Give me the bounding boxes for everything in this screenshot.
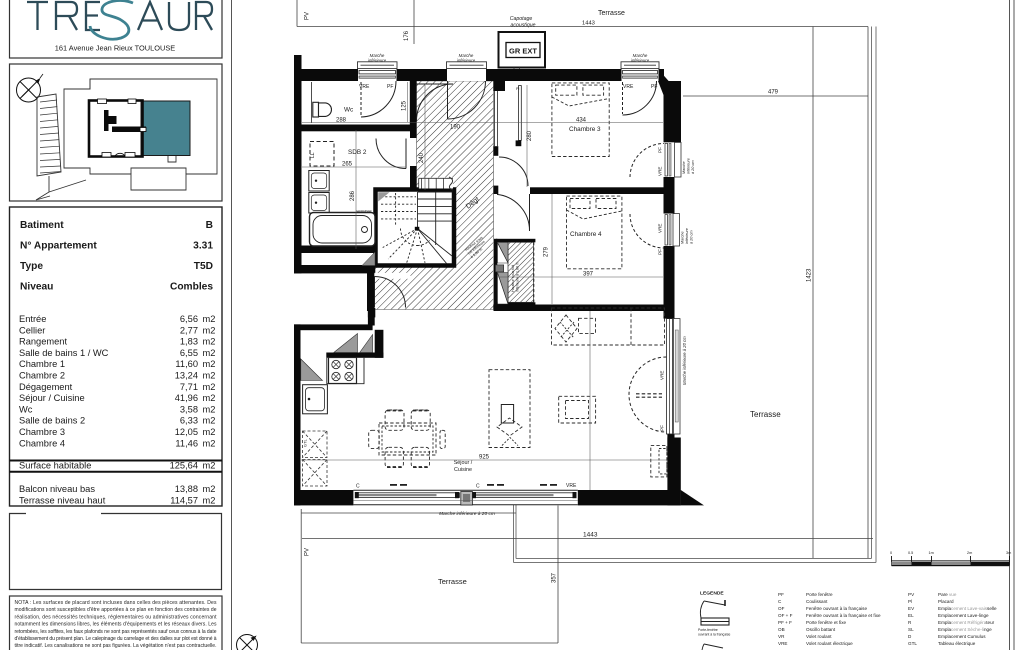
svg-text:265: 265	[342, 162, 353, 168]
svg-text:LEGENDE: LEGENDE	[700, 591, 724, 597]
svg-text:NOTA : Les surfaces de placard: NOTA : Les surfaces de placard sont incl…	[15, 600, 218, 606]
svg-text:Séjour /: Séjour /	[454, 460, 473, 466]
svg-text:modifications sont susceptible: modifications sont susceptibles d'être a…	[15, 607, 217, 613]
svg-text:C: C	[356, 484, 360, 490]
svg-text:6,56: 6,56	[180, 314, 198, 324]
svg-text:inférieure: inférieure	[687, 158, 691, 174]
svg-text:m2: m2	[203, 314, 216, 324]
svg-text:280: 280	[527, 130, 533, 141]
svg-text:Séjour / Cuisine: Séjour / Cuisine	[19, 393, 85, 403]
svg-text:Type: Type	[20, 261, 43, 272]
svg-text:GTL: GTL	[303, 438, 308, 447]
svg-text:m2: m2	[203, 438, 216, 448]
svg-text:Chambre 3: Chambre 3	[19, 427, 65, 437]
svg-text:Porte-fenêtre: Porte-fenêtre	[698, 628, 718, 632]
svg-text:PF: PF	[387, 84, 393, 90]
svg-text:1423: 1423	[807, 268, 813, 282]
svg-text:7,71: 7,71	[180, 382, 198, 392]
svg-text:m2: m2	[203, 404, 216, 414]
svg-text:13,24: 13,24	[175, 371, 198, 381]
svg-text:Salle de bains 2: Salle de bains 2	[19, 416, 85, 426]
svg-text:Emplacement Lave-linge: Emplacement Lave-linge	[938, 613, 989, 618]
svg-text:925: 925	[479, 455, 490, 461]
svg-text:C: C	[476, 484, 480, 490]
svg-text:inférieure: inférieure	[685, 228, 689, 244]
svg-text:Marche: Marche	[681, 231, 685, 244]
svg-text:m2: m2	[203, 484, 216, 494]
svg-text:m2: m2	[203, 348, 216, 358]
svg-text:Fenêtre ouvrant à la française: Fenêtre ouvrant à la française	[806, 606, 867, 611]
svg-text:41,96: 41,96	[175, 393, 198, 403]
svg-text:Tableau électrique: Tableau électrique	[938, 641, 976, 646]
svg-text:Porte fenêtre et fixe: Porte fenêtre et fixe	[806, 620, 847, 625]
svg-text:Chambre 1: Chambre 1	[19, 359, 65, 369]
svg-text:à 20 cm: à 20 cm	[691, 160, 695, 174]
svg-text:Pare vue: Pare vue	[938, 592, 957, 597]
svg-text:161 Avenue Jean Rieux TOULOUSE: 161 Avenue Jean Rieux TOULOUSE	[55, 44, 175, 53]
svg-text:1m: 1m	[929, 551, 934, 555]
svg-text:Combles: Combles	[170, 282, 213, 293]
svg-text:SDB 2: SDB 2	[348, 149, 367, 156]
svg-text:Terrasse: Terrasse	[438, 577, 467, 586]
svg-text:VRE: VRE	[623, 84, 634, 90]
svg-text:PV: PV	[305, 548, 311, 556]
svg-text:m2: m2	[203, 325, 216, 335]
svg-text:OF + F: OF + F	[778, 613, 793, 618]
svg-text:m2: m2	[203, 337, 216, 347]
svg-text:PF: PF	[658, 147, 663, 153]
svg-text:125,64: 125,64	[170, 461, 198, 471]
svg-text:3,58: 3,58	[180, 404, 198, 414]
svg-text:Salle de bains 1 / WC: Salle de bains 1 / WC	[19, 348, 109, 358]
svg-text:VRE: VRE	[566, 483, 577, 489]
svg-text:N° Appartement: N° Appartement	[20, 241, 97, 252]
svg-text:GR EXT: GR EXT	[509, 47, 537, 56]
svg-text:125: 125	[402, 100, 408, 111]
svg-text:357: 357	[552, 572, 558, 583]
svg-text:397: 397	[583, 272, 594, 278]
svg-text:B: B	[206, 220, 213, 231]
svg-text:Chambre 3: Chambre 3	[569, 126, 601, 133]
svg-text:Placard: Placard	[938, 599, 954, 604]
svg-text:286: 286	[350, 190, 356, 201]
svg-text:Emplacement Cumulus: Emplacement Cumulus	[938, 634, 986, 639]
svg-text:GTL: GTL	[908, 641, 917, 646]
svg-text:0.5: 0.5	[908, 551, 913, 555]
svg-text:Terrasse: Terrasse	[598, 10, 625, 17]
svg-text:PV: PV	[305, 12, 311, 20]
svg-text:12,05: 12,05	[175, 427, 198, 437]
svg-text:Surface habitable: Surface habitable	[19, 461, 91, 471]
svg-text:EL: EL	[908, 613, 914, 618]
svg-text:Volet roulant: Volet roulant	[806, 634, 832, 639]
svg-text:LL: LL	[310, 152, 316, 158]
svg-text:Pl: Pl	[516, 87, 520, 91]
svg-text:PF: PF	[778, 592, 784, 597]
svg-text:réalisation, des nécessités te: réalisation, des nécessités techniques, …	[15, 614, 218, 620]
svg-text:Volet roulant électrique: Volet roulant électrique	[806, 641, 853, 646]
svg-text:0: 0	[890, 551, 892, 555]
svg-text:Chambre 4: Chambre 4	[570, 231, 602, 238]
svg-text:114,57: 114,57	[170, 496, 198, 506]
svg-text:1,83: 1,83	[180, 337, 198, 347]
svg-text:retombées, les soffites, les f: retombées, les soffites, les faux plafon…	[15, 629, 217, 635]
svg-text:d'établissement du présent pla: d'établissement du présent plan. Le cale…	[15, 636, 217, 642]
svg-text:479: 479	[768, 90, 779, 96]
svg-text:Hauteur sous toit: Hauteur sous toit	[511, 265, 515, 292]
svg-text:m2: m2	[203, 359, 216, 369]
svg-text:240: 240	[419, 152, 425, 163]
svg-text:Batiment: Batiment	[20, 220, 64, 231]
svg-text:ouvrant à la française: ouvrant à la française	[698, 633, 731, 637]
svg-text:PF: PF	[658, 249, 663, 255]
svg-text:2,77: 2,77	[180, 325, 198, 335]
svg-text:PF + F: PF + F	[778, 620, 792, 625]
svg-text:T5D: T5D	[194, 261, 213, 272]
svg-text:1443: 1443	[583, 532, 598, 539]
svg-text:PF: PF	[660, 425, 665, 431]
svg-text:Marche inférieure à 20 cm: Marche inférieure à 20 cm	[682, 336, 687, 385]
svg-text:Dégagement: Dégagement	[19, 382, 73, 392]
svg-text:3m: 3m	[1006, 551, 1011, 555]
svg-text:Wc: Wc	[19, 404, 33, 414]
svg-text:3.31: 3.31	[193, 241, 213, 252]
svg-text:Terrasse: Terrasse	[750, 410, 781, 419]
svg-text:6,55: 6,55	[180, 348, 198, 358]
svg-text:m2: m2	[203, 382, 216, 392]
svg-text:m2: m2	[203, 496, 216, 506]
svg-text:Terrasse niveau haut: Terrasse niveau haut	[19, 496, 106, 506]
svg-text:2m: 2m	[967, 551, 972, 555]
svg-text:1443: 1443	[582, 21, 595, 27]
svg-text:288: 288	[336, 118, 347, 124]
svg-text:Coulissant: Coulissant	[806, 599, 828, 604]
svg-text:Chambre 4: Chambre 4	[19, 438, 65, 448]
svg-text:Wc: Wc	[344, 107, 354, 114]
svg-text:m2: m2	[203, 461, 216, 471]
svg-text:Fenêtre ouvrant à la française: Fenêtre ouvrant à la française et fixe	[806, 613, 881, 618]
svg-text:Entrée: Entrée	[19, 314, 46, 324]
svg-text:Marche inférieure à 20 cm: Marche inférieure à 20 cm	[439, 511, 495, 517]
svg-text:Porte fenêtre: Porte fenêtre	[806, 592, 833, 597]
svg-text:titre indicatif. Les canalisat: titre indicatif. Les canalisations ne so…	[15, 643, 217, 649]
svg-text:Emplacement Réfrigérateur: Emplacement Réfrigérateur	[938, 620, 995, 625]
svg-text:11,46: 11,46	[175, 438, 198, 448]
svg-text:Emplacement Sèche-linge: Emplacement Sèche-linge	[938, 627, 992, 632]
svg-text:13,88: 13,88	[175, 484, 198, 494]
svg-text:à 20 cm: à 20 cm	[690, 230, 694, 244]
svg-text:Cuisine: Cuisine	[454, 467, 472, 473]
svg-text:notamment les dimensions libre: notamment les dimensions libres, les élé…	[15, 622, 218, 628]
svg-text:Balcon niveau bas: Balcon niveau bas	[19, 484, 95, 494]
svg-text:Oscillo battant: Oscillo battant	[806, 627, 836, 632]
svg-text:Cellier: Cellier	[19, 325, 45, 335]
svg-text:176: 176	[404, 30, 410, 41]
svg-text:190: 190	[450, 125, 461, 131]
svg-text:6,33: 6,33	[180, 416, 198, 426]
svg-text:Marche: Marche	[682, 161, 686, 174]
svg-text:279: 279	[544, 246, 550, 257]
svg-text:11,60: 11,60	[175, 359, 198, 369]
svg-text:Pl: Pl	[908, 599, 912, 604]
svg-text:OB: OB	[778, 627, 785, 632]
svg-text:Niveau: Niveau	[20, 282, 53, 293]
svg-text:VRE: VRE	[658, 167, 663, 176]
svg-text:434: 434	[576, 118, 587, 124]
svg-text:VRE: VRE	[658, 224, 663, 233]
svg-text:m2: m2	[203, 416, 216, 426]
svg-text:VRE: VRE	[660, 371, 665, 380]
svg-text:EV: EV	[908, 606, 915, 611]
svg-text:OF: OF	[778, 606, 785, 611]
svg-text:VR: VR	[778, 634, 785, 639]
svg-text:PV: PV	[908, 592, 915, 597]
svg-text:Emplacement Lave-vaisselle: Emplacement Lave-vaisselle	[938, 606, 997, 611]
svg-text:VRE: VRE	[778, 641, 787, 646]
svg-text:m2: m2	[203, 393, 216, 403]
svg-text:acoustique: acoustique	[510, 23, 535, 29]
svg-text:Rangement: Rangement	[19, 337, 67, 347]
svg-text:Capotage: Capotage	[510, 16, 533, 22]
svg-text:m2: m2	[203, 427, 216, 437]
svg-text:m2: m2	[203, 371, 216, 381]
svg-text:Chambre 2: Chambre 2	[19, 371, 65, 381]
svg-text:SL: SL	[908, 627, 914, 632]
